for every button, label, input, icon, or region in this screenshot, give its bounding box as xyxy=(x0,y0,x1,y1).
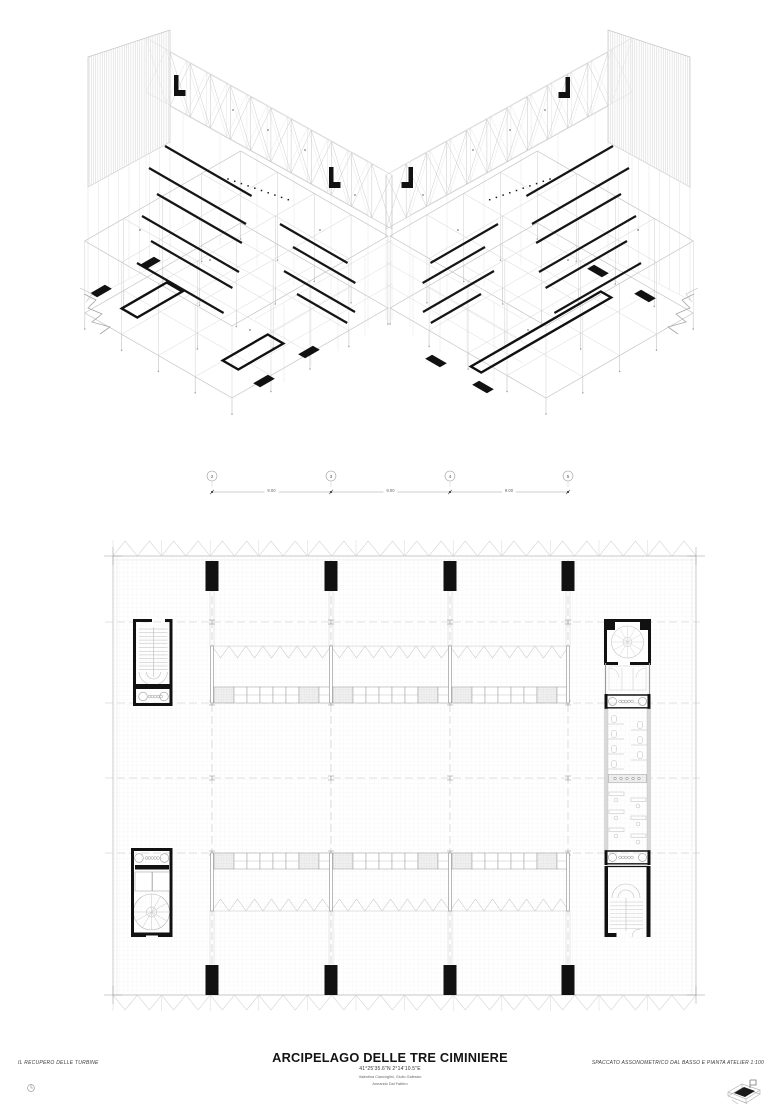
dimension-label-1: 9.00 xyxy=(265,488,279,493)
svg-text:9.00: 9.00 xyxy=(505,488,514,493)
svg-text:4: 4 xyxy=(449,474,452,479)
drawing-sheet: 2 3 4 5 9.00 9.00 9.00 xyxy=(0,0,780,1104)
title-block-center: ARCIPELAGO DELLE TRE CIMINIERE 41°25'35.… xyxy=(190,1051,590,1087)
dimension-label-3: 9.00 xyxy=(502,488,516,493)
grid-bubble-1: 2 xyxy=(207,471,217,487)
axonometric-key-icon xyxy=(722,1072,768,1104)
grid-dimension-strip: 2 3 4 5 9.00 9.00 9.00 xyxy=(207,471,573,494)
drawing-board: 2 3 4 5 9.00 9.00 9.00 xyxy=(0,0,780,1104)
title-block-right: SPACCATO ASSONOMETRICO DAL BASSO E PIANT… xyxy=(464,1060,764,1066)
svg-text:9.00: 9.00 xyxy=(267,488,276,493)
north-arrow-icon xyxy=(25,1082,37,1094)
axonometric-left xyxy=(80,30,392,415)
axonometric-right xyxy=(386,30,698,415)
title-block: IL RECUPERO DELLE TURBINE ARCIPELAGO DEL… xyxy=(0,1046,780,1104)
authors-line-2: Armando Dal Fabbro xyxy=(190,1082,590,1087)
grid-bubble-3: 4 xyxy=(445,471,455,487)
grid-bubble-2: 3 xyxy=(326,471,336,487)
sheet-label: SPACCATO ASSONOMETRICO DAL BASSO E PIANT… xyxy=(464,1060,764,1066)
svg-text:3: 3 xyxy=(330,474,333,479)
svg-text:5: 5 xyxy=(567,474,570,479)
coordinates-label: 41°25'35.6"N 2°14'10.5"E xyxy=(190,1066,590,1072)
svg-text:9.00: 9.00 xyxy=(386,488,395,493)
floor-plan xyxy=(104,540,705,1011)
authors-line-1: Valentina Ciancoglini, Giulio Galessio xyxy=(190,1075,590,1080)
svg-text:2: 2 xyxy=(211,474,214,479)
grid-bubble-4: 5 xyxy=(563,471,573,487)
dimension-label-2: 9.00 xyxy=(384,488,398,493)
